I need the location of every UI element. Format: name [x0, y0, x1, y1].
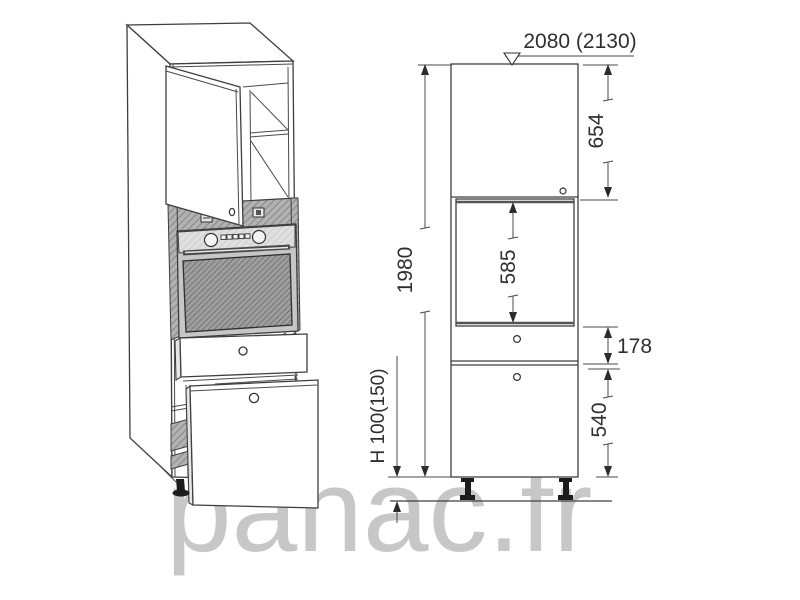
oven — [177, 224, 298, 338]
elevation-foot-right — [558, 478, 573, 500]
bottom-drawer-handle — [249, 393, 258, 402]
oven-door-glass — [183, 254, 292, 332]
dim-width-label: 2080 (2130) — [523, 30, 636, 53]
cabinet-drawing: 2080 (2130) 1980 654 — [0, 0, 800, 600]
elevation-door-handle — [560, 188, 566, 194]
microwave-control-icon — [253, 208, 264, 217]
elevation-drawer2-handle — [514, 374, 521, 381]
elevation-drawer1-handle — [514, 336, 521, 343]
dim-bottom-drawer: 540 — [588, 369, 613, 477]
upper-door-handle-hole — [229, 208, 234, 215]
oven-button-row — [221, 234, 250, 240]
dim-width: 2080 (2130) — [504, 30, 637, 65]
elevation-view: 2080 (2130) 1980 654 — [368, 30, 652, 523]
dim-total-height: 1980 — [394, 64, 430, 477]
dim-drawer: 178 — [604, 327, 652, 364]
technical-drawing-page: panac.fr — [0, 0, 800, 600]
pictorial-view — [127, 23, 318, 508]
dim-oven-opening-label: 585 — [497, 249, 520, 284]
dim-drawer-label: 178 — [617, 335, 652, 358]
cabinet-left-side — [127, 25, 172, 477]
dim-top-door: 654 — [585, 64, 613, 198]
middle-drawer-handle — [239, 347, 247, 355]
upper-door-open — [166, 66, 243, 226]
datum-triangle-marker — [504, 53, 520, 65]
oven-knob-right — [253, 231, 266, 244]
dim-total-height-label: 1980 — [394, 247, 417, 294]
dim-bottom-drawer-label: 540 — [588, 402, 611, 437]
dim-plinth: H 100(150) — [368, 356, 401, 523]
oven-knob-left — [205, 234, 218, 247]
dim-top-door-label: 654 — [585, 113, 608, 148]
middle-drawer — [175, 334, 307, 380]
elevation-foot-left — [460, 478, 475, 500]
bottom-drawer — [186, 380, 318, 508]
dim-plinth-label: H 100(150) — [368, 368, 389, 463]
